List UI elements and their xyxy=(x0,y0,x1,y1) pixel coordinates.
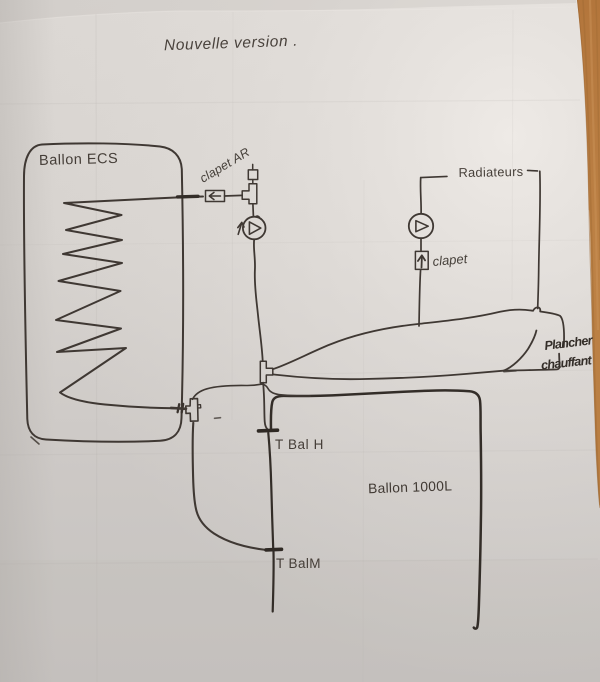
svg-text:T BalM: T BalM xyxy=(276,556,321,571)
svg-text:Ballon ECS: Ballon ECS xyxy=(39,151,119,169)
svg-text:T Bal H: T Bal H xyxy=(275,437,324,452)
svg-text:clapet: clapet xyxy=(432,251,469,269)
svg-text:Ballon 1000L: Ballon 1000L xyxy=(368,478,453,496)
svg-text:Radiateurs: Radiateurs xyxy=(458,164,523,180)
